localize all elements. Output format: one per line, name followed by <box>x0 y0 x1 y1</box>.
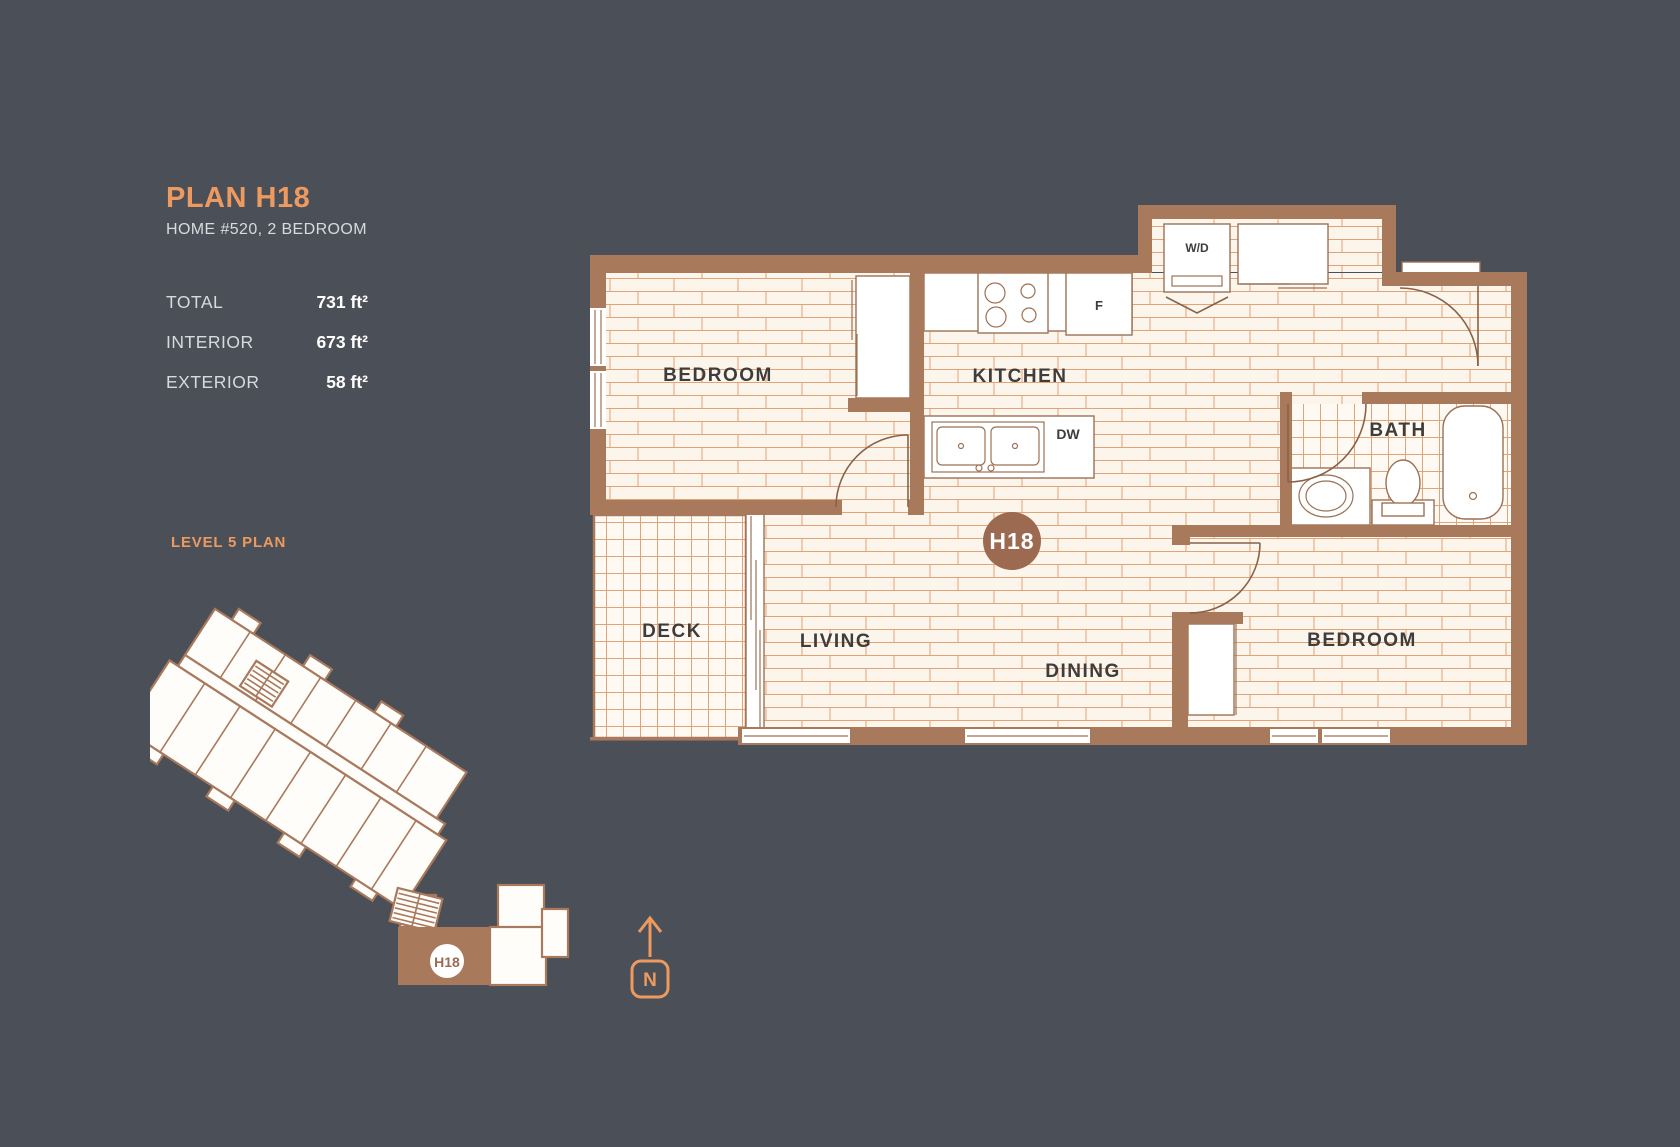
mini-unit-badge-label: H18 <box>434 954 460 970</box>
unit-badge-label: H18 <box>989 528 1034 554</box>
room-label-kitchen: KITCHEN <box>973 366 1068 387</box>
room-label-bedroom1: BEDROOM <box>663 365 773 386</box>
stat-value: 731 ft² <box>316 292 368 313</box>
wall <box>1362 392 1511 404</box>
wall <box>590 500 842 515</box>
wall <box>1188 612 1243 624</box>
wall <box>1382 272 1527 286</box>
wall <box>1280 392 1292 537</box>
toilet-bowl <box>1386 460 1420 506</box>
level-key-plan: H18 <box>150 595 570 1000</box>
north-compass: N <box>618 905 682 1005</box>
dishwasher-label: DW <box>1056 426 1080 442</box>
page-title: PLAN H18 <box>166 182 310 215</box>
wall <box>1172 525 1190 545</box>
stat-label: TOTAL <box>166 292 223 313</box>
wall <box>1172 525 1511 537</box>
room-label-bath: BATH <box>1369 420 1426 441</box>
stat-value: 673 ft² <box>316 332 368 353</box>
wall <box>590 255 1138 273</box>
deck-sliding-door <box>746 512 764 740</box>
wall <box>1511 272 1527 745</box>
stat-row-total: TOTAL 731 ft² <box>166 292 368 313</box>
deck-rail <box>590 737 740 741</box>
bathtub <box>1443 406 1503 519</box>
stat-row-exterior: EXTERIOR 58 ft² <box>166 372 368 393</box>
floorplan-page: PLAN H18 HOME #520, 2 BEDROOM TOTAL 731 … <box>0 0 1680 1147</box>
annex-unit <box>498 885 544 929</box>
bedroom2-closet <box>1188 624 1234 715</box>
bedroom1-closet <box>856 276 910 398</box>
north-arrow-icon <box>639 918 661 957</box>
washer-dryer-box <box>1164 224 1230 292</box>
room-label-deck: DECK <box>642 621 702 642</box>
main-floorplan: H18 BEDROOM KITCHEN BATH DECK LIVING DIN… <box>590 200 1530 770</box>
north-label: N <box>643 970 657 991</box>
level-plan-label: LEVEL 5 PLAN <box>171 534 286 551</box>
stat-label: EXTERIOR <box>166 372 259 393</box>
annex-unit <box>542 909 568 957</box>
room-label-living: LIVING <box>800 631 872 652</box>
stat-label: INTERIOR <box>166 332 254 353</box>
page-subtitle: HOME #520, 2 BEDROOM <box>166 221 367 239</box>
stat-value: 58 ft² <box>326 372 368 393</box>
room-label-bedroom2: BEDROOM <box>1307 630 1417 651</box>
fridge-label: F <box>1095 298 1103 313</box>
building-bar <box>150 595 490 919</box>
entry-closet <box>1238 224 1328 284</box>
area-stats: TOTAL 731 ft² INTERIOR 673 ft² EXTERIOR … <box>166 292 368 412</box>
wall <box>910 255 924 515</box>
annex-unit <box>490 927 546 985</box>
wall <box>1138 205 1396 219</box>
wall <box>1172 612 1188 727</box>
wall <box>738 727 1527 745</box>
washer-dryer-label: W/D <box>1185 241 1209 255</box>
stat-row-interior: INTERIOR 673 ft² <box>166 332 368 353</box>
toilet-tank <box>1382 503 1424 516</box>
room-label-dining: DINING <box>1045 661 1121 682</box>
wall <box>848 398 910 412</box>
